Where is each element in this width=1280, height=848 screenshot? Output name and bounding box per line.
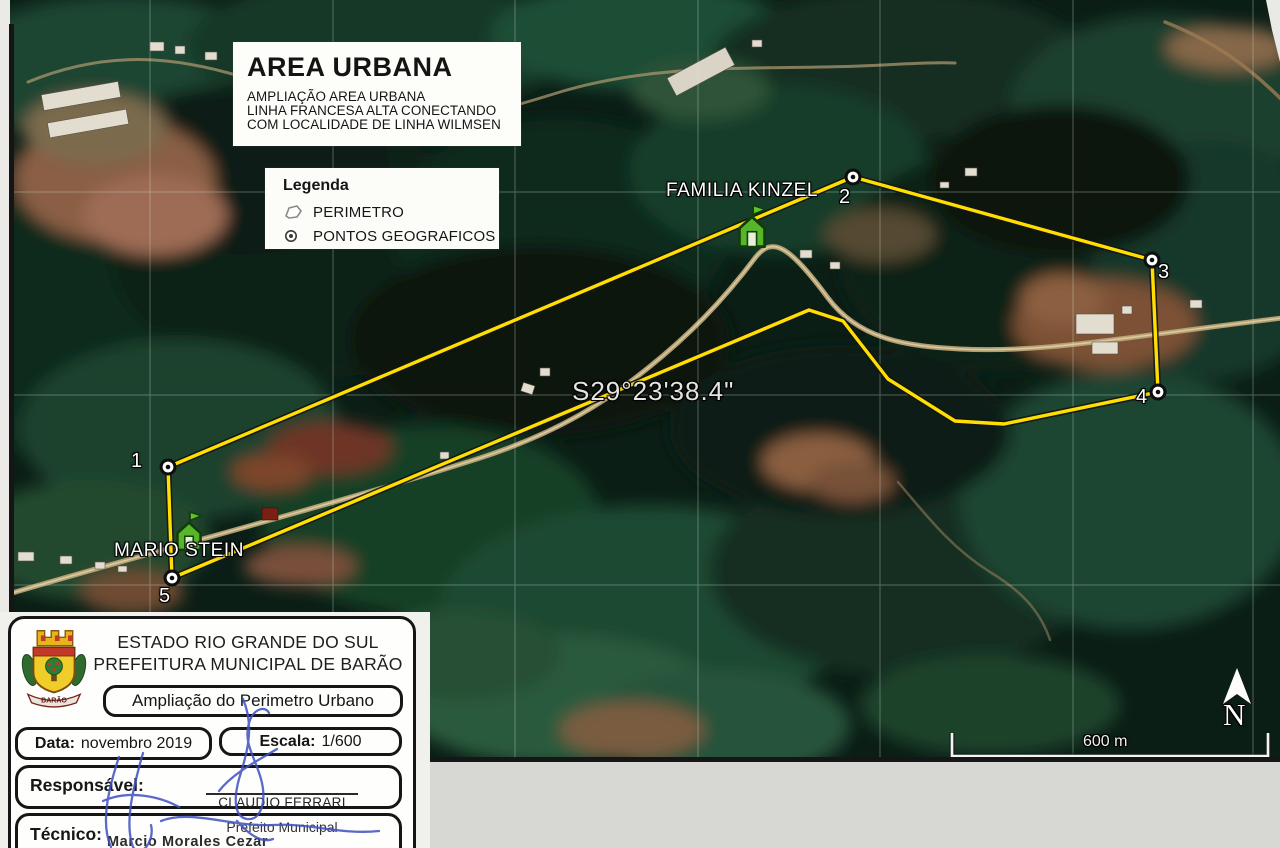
point-label-5: 5 [159,585,170,608]
map-title-box: AREA URBANA AMPLIAÇÃO AREA URBANA LINHA … [233,42,521,146]
map-title: AREA URBANA [247,52,507,83]
org-line-2: PREFEITURA MUNICIPAL DE BARÃO [81,653,415,675]
point-label-3: 3 [1158,261,1169,284]
north-label: N [1223,697,1245,733]
perimeter-polygon-icon [283,204,313,221]
scale-value: 1/600 [322,733,362,751]
date-box: Data: novembro 2019 [15,727,212,760]
scan-edge-left [9,24,14,614]
crest-banner-text: BARÃO [41,696,67,705]
legend-item-perimeter: PERIMETRO [283,200,499,224]
legend-item-label: PONTOS GEOGRAFICOS [313,228,496,245]
map-subtitle-line-2: LINHA FRANCESA ALTA CONECTANDO [247,104,507,118]
title-block-frame: BARÃO ESTADO RIO GRANDE DO SUL PREFEITUR… [8,616,416,848]
technician-name: Marcio Morales Cezar [107,834,367,848]
date-value: novembro 2019 [81,735,192,753]
scale-bar-label: 600 m [1083,733,1127,751]
title-block: BARÃO ESTADO RIO GRANDE DO SUL PREFEITUR… [0,612,430,848]
legend-item-geo-points: PONTOS GEOGRAFICOS [283,224,499,248]
scanned-map-document: FAMILIA KINZEL MARIO STEIN S29°23'38.4" … [0,0,1280,848]
point-label-4: 4 [1136,386,1147,409]
place-label-mario-stein: MARIO STEIN [114,540,244,562]
legend-title: Legenda [283,177,499,195]
legend-item-label: PERIMETRO [313,204,404,221]
church-icon-familia-kinzel [739,205,765,246]
map-subtitle-line-1: AMPLIAÇÃO AREA URBANA [247,90,507,104]
point-label-2: 2 [839,186,850,209]
point-marker-2 [845,169,862,186]
point-marker-4 [1150,384,1167,401]
legend-box: Legenda PERIMETRO PONTOS GEOGRAFICOS [265,168,499,249]
point-marker-1 [160,459,177,476]
point-label-1: 1 [131,450,142,473]
point-marker-5 [164,570,181,587]
organization-name: ESTADO RIO GRANDE DO SUL PREFEITURA MUNI… [81,631,415,675]
date-label: Data: [35,735,75,753]
geographic-point-icon [283,228,313,244]
map-subtitle-line-3: COM LOCALIDADE DE LINHA WILMSEN [247,118,507,132]
place-label-familia-kinzel: FAMILIA KINZEL [666,180,818,202]
technician-label: Técnico: [30,824,102,845]
coat-of-arms-icon: BARÃO [21,627,87,713]
responsible-label: Responsável: [30,775,144,796]
scale-label: Escala: [259,733,315,751]
coordinate-label: S29°23'38.4" [572,376,734,407]
map-subject: Ampliação do Perimetro Urbano [132,691,374,711]
responsible-name: CLAUDIO FERRARI [199,795,365,810]
map-subject-box: Ampliação do Perimetro Urbano [103,685,403,717]
scale-box: Escala: 1/600 [219,727,402,756]
org-line-1: ESTADO RIO GRANDE DO SUL [81,631,415,653]
